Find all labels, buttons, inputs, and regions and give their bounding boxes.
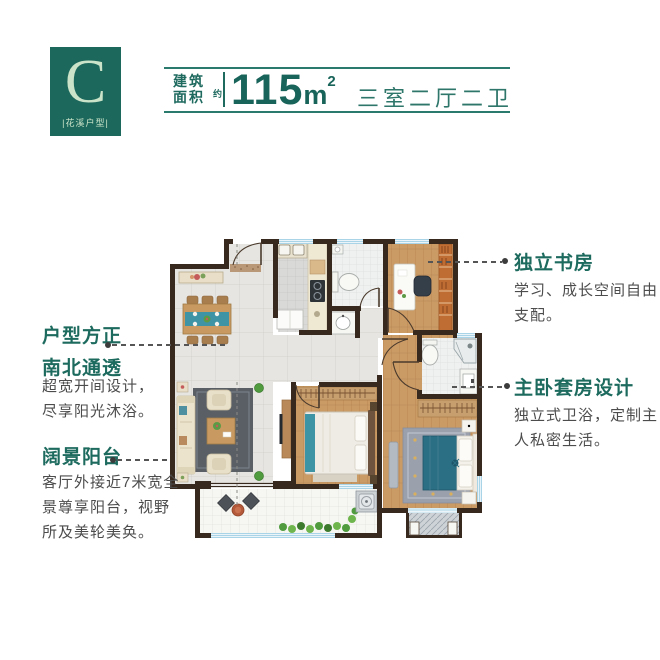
bench (389, 442, 398, 488)
nightstand (370, 475, 378, 484)
sink-basin (279, 245, 290, 255)
callout-master-heading: 主卧套房设计 (514, 373, 634, 405)
master-balcony-window (408, 509, 457, 513)
callout-study-heading: 独立书房 (514, 248, 594, 280)
plant-icon (255, 472, 264, 481)
stove (310, 280, 325, 302)
pillow (459, 439, 472, 461)
unit-letter: C (65, 49, 106, 115)
kitchen-window (279, 239, 313, 244)
hangers-icon (301, 389, 365, 398)
floor-plan (167, 236, 489, 548)
pillow (355, 445, 366, 470)
nightstand (370, 402, 378, 411)
area-value: 115m2 (231, 66, 336, 115)
vanity-basin (336, 317, 350, 330)
callout-dot (502, 258, 508, 264)
living-room-set (177, 382, 291, 482)
guest-bath-window (337, 239, 363, 244)
unit-type-badge: C |花溪户型| (50, 47, 121, 136)
callout-connector-line (452, 386, 504, 388)
bed-throw (305, 414, 315, 472)
tv-icon (280, 414, 283, 444)
balcony-window (211, 533, 335, 538)
plant-icon (255, 384, 264, 393)
master-side-window (477, 476, 482, 502)
office-chair (414, 276, 431, 296)
pillow (355, 416, 366, 441)
area-label: 建筑 面积 (173, 73, 205, 105)
callout-huxing-body: 超宽开间设计， 尽享阳光沐浴。 (42, 374, 154, 424)
callout-dot (504, 383, 510, 389)
callout-dot (110, 457, 116, 463)
tv-cabinet (282, 400, 291, 458)
callout-connector-line (428, 261, 502, 263)
toilet-icon (422, 345, 438, 365)
floorplan-poster: C |花溪户型| 建筑 面积 约 115m2 三室二厅二卫 (0, 0, 660, 660)
toilet-tank (332, 272, 338, 292)
nightstand (462, 492, 476, 504)
bedroom2-window (339, 484, 373, 489)
sliding-door (211, 484, 273, 487)
sofa-pillow (179, 406, 187, 415)
callout-connector-line (117, 459, 170, 461)
room-count-label: 三室二厅二卫 (357, 81, 513, 113)
unit-name: |花溪户型| (62, 116, 109, 129)
wardrobe (418, 400, 477, 417)
headboard (368, 410, 375, 476)
bed-rug (313, 474, 357, 482)
callout-connector-line (112, 344, 226, 346)
toilet-tank (423, 340, 437, 345)
flower-icon (194, 274, 200, 280)
coffee-table (207, 418, 235, 444)
header-divider (223, 72, 225, 107)
pillow (459, 465, 472, 487)
callout-balcony-body: 客厅外接近7米宽全 景尊享阳台，视野 所及美轮美奂。 (42, 470, 179, 545)
cutting-board (310, 260, 325, 274)
balcony-post (448, 522, 457, 535)
callout-master-body: 独立式卫浴，定制主 人私密生活。 (514, 403, 658, 453)
toilet-icon (339, 274, 359, 291)
master-bath-window (457, 333, 475, 338)
callout-dot (105, 342, 111, 348)
dining-set (179, 272, 231, 344)
callout-study-body: 学习、成长空间自由 支配。 (514, 278, 658, 328)
shower-head-icon (468, 344, 473, 349)
bookshelf (439, 244, 452, 331)
sink-basin (293, 245, 304, 255)
header-rule-top (164, 67, 510, 69)
entry-mat (230, 264, 261, 272)
study-window (395, 239, 429, 244)
balcony-post (410, 522, 419, 535)
approx-label: 约 (213, 87, 222, 100)
hallway-floor (273, 335, 378, 382)
